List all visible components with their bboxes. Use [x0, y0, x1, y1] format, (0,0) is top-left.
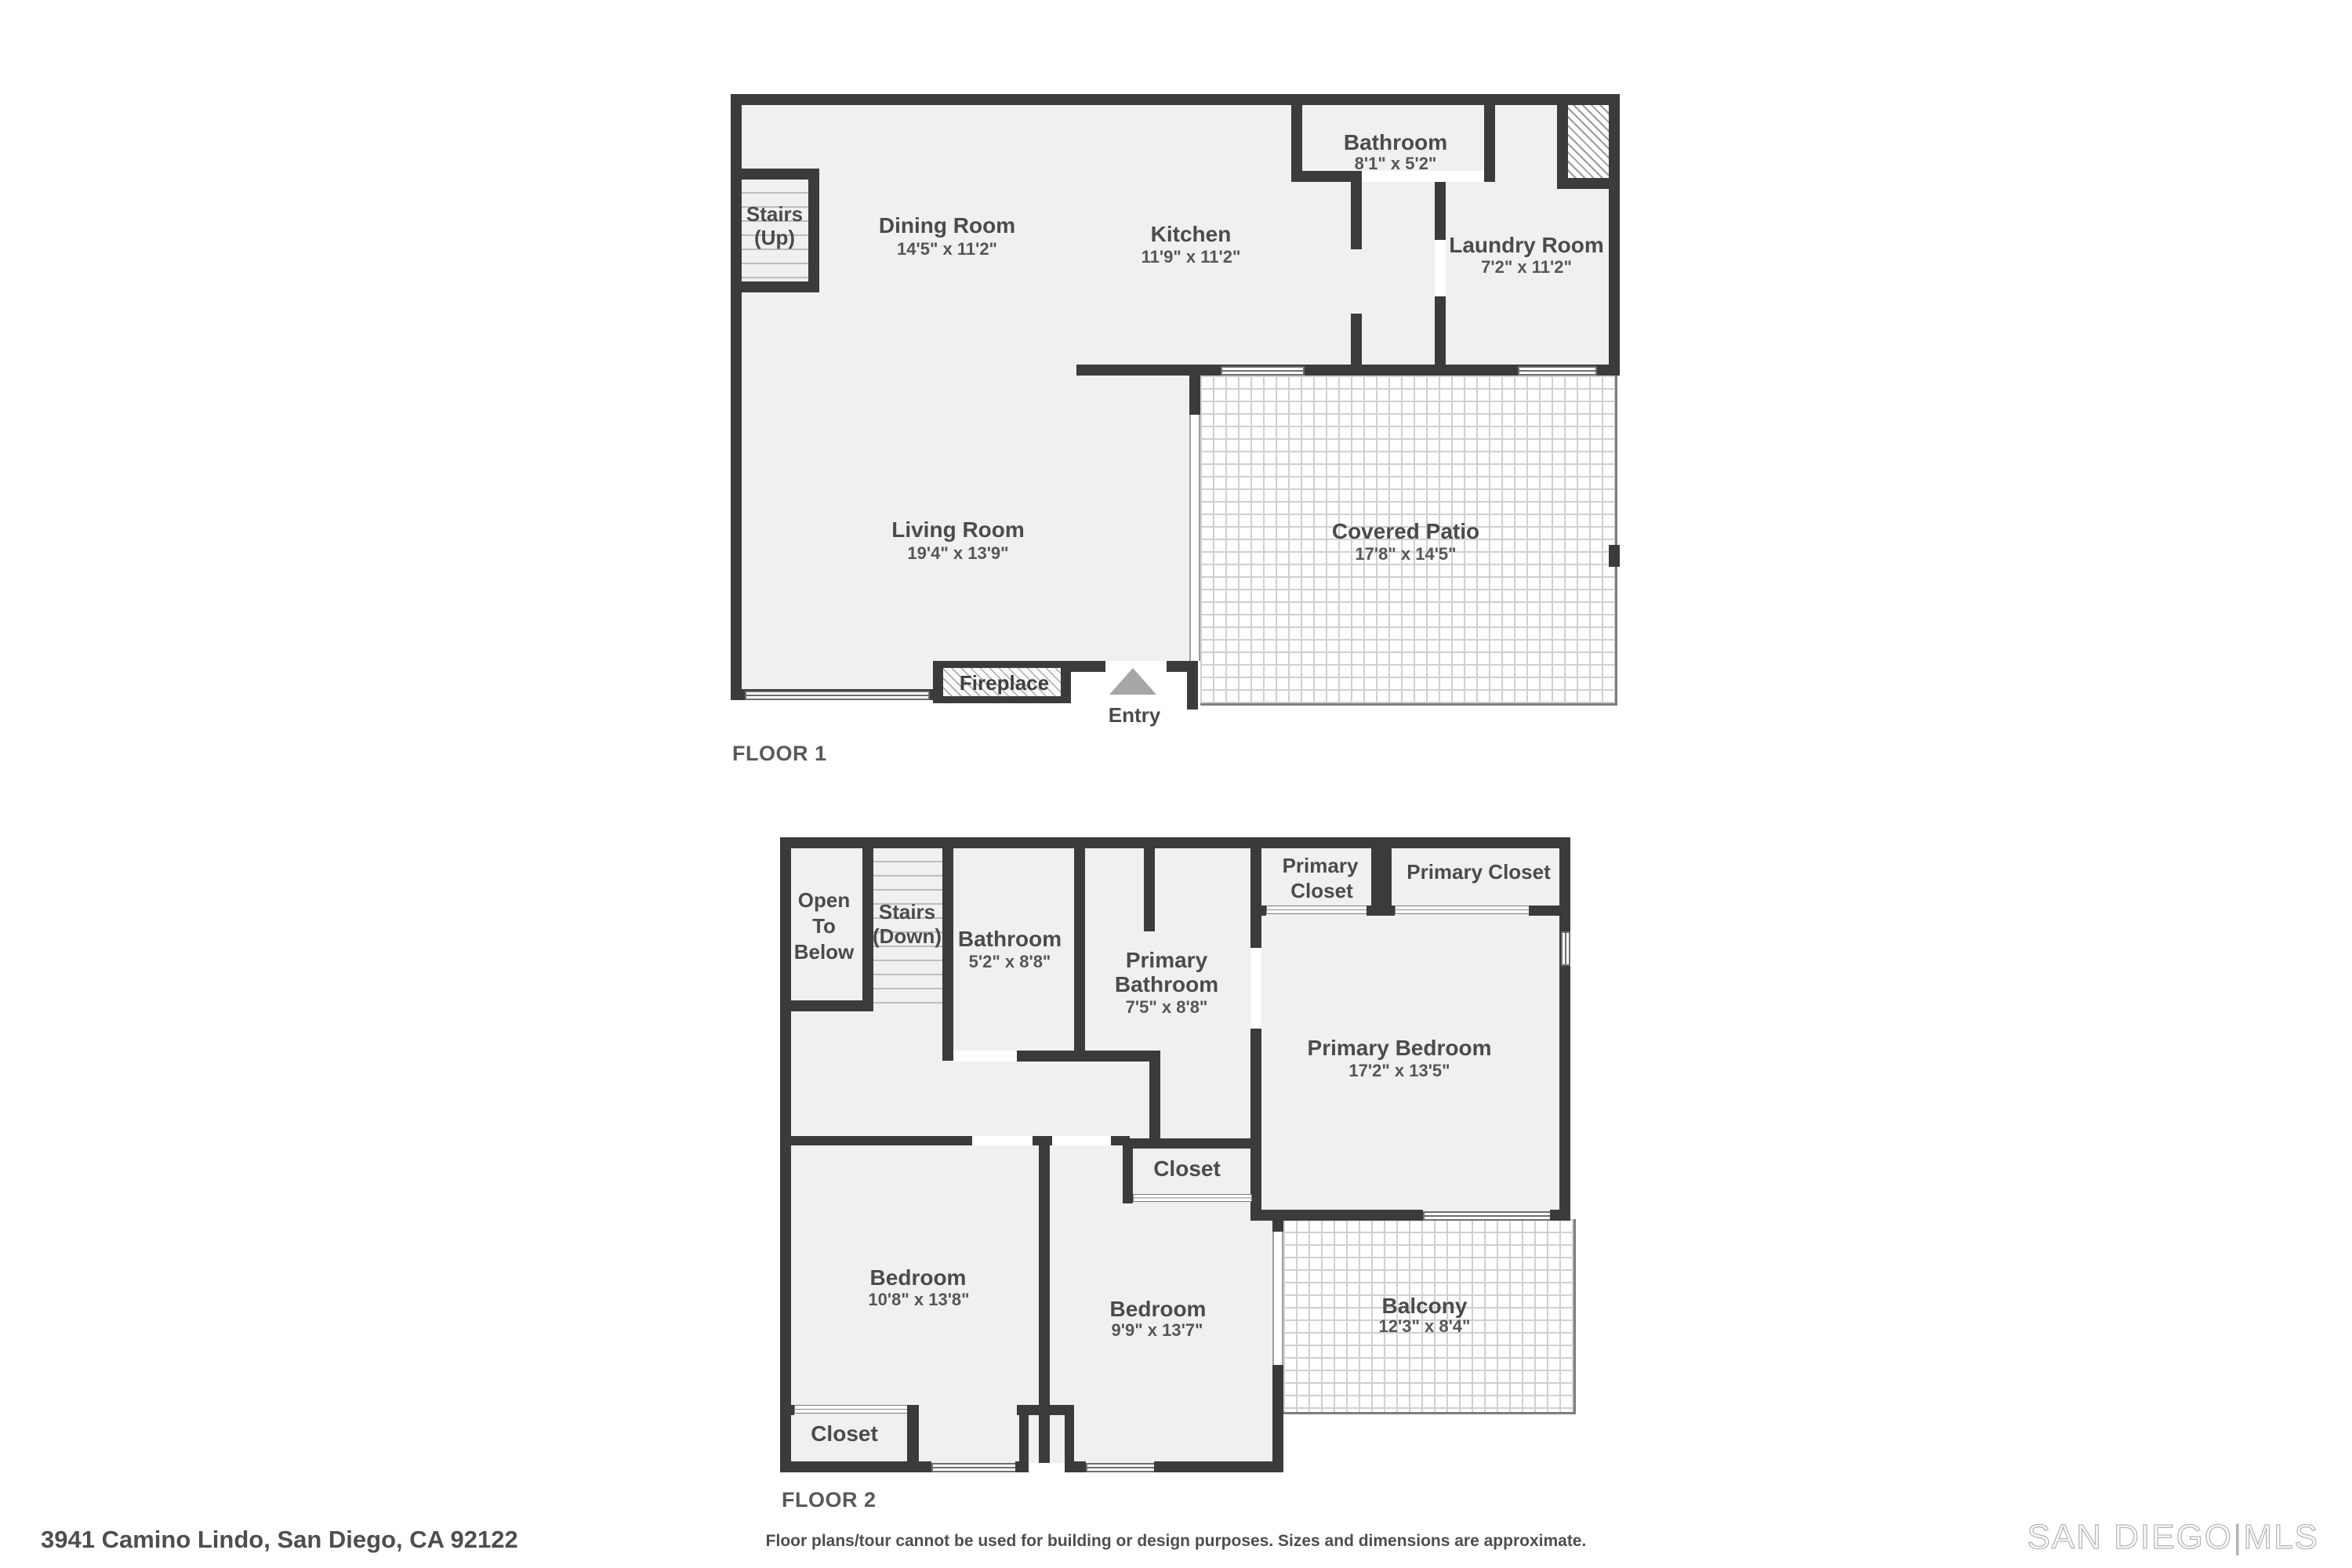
wall-segment: [1272, 1365, 1283, 1472]
property-address: 3941 Camino Lindo, San Diego, CA 92122: [41, 1526, 518, 1554]
wall-segment: [808, 180, 819, 292]
room-label-laundry: Laundry Room: [1449, 234, 1604, 256]
wall-segment: [1039, 1145, 1050, 1463]
room-label-closet-bottom: Closet: [811, 1423, 878, 1445]
wall-segment: [1435, 182, 1446, 240]
wall-segment: [907, 1405, 919, 1415]
room-label-bedroom2: Bedroom: [1110, 1298, 1207, 1320]
window: [931, 1463, 1018, 1472]
logo-part2: MLS: [2244, 1518, 2319, 1556]
window: [1086, 1463, 1157, 1472]
floor2-caption: FLOOR 2: [782, 1488, 877, 1512]
wall-segment: [780, 848, 791, 1472]
room-label-primary-closet1b: Closet: [1290, 880, 1352, 901]
door-opening: [953, 1051, 1017, 1062]
wall-segment: [1609, 105, 1620, 376]
room-dims-bathroom2: 5'2" x 8'8": [969, 953, 1051, 971]
wall-segment: [735, 169, 819, 180]
door-opening: [1435, 240, 1446, 296]
window: [1423, 1211, 1553, 1221]
wall-segment: [1187, 661, 1198, 710]
closet-door: [1133, 1194, 1252, 1202]
room-dims-living: 19'4" x 13'9": [907, 545, 1008, 562]
door-opening: [972, 1136, 1033, 1145]
logo-part1: SAN DIEGO: [2027, 1518, 2234, 1556]
entry-arrow-icon: [1109, 668, 1156, 695]
room-dims-primary-bedroom: 17'2" x 13'5": [1348, 1062, 1450, 1080]
wall-segment: [784, 1405, 794, 1415]
room-label-kitchen: Kitchen: [1151, 223, 1232, 245]
room-dims-bathroom1: 8'1" x 5'2": [1355, 155, 1437, 172]
room-dims-bedroom1: 10'8" x 13'8": [868, 1291, 969, 1308]
closet-door: [794, 1405, 909, 1414]
room-label-primary-closet2: Primary Closet: [1406, 862, 1551, 882]
floor1-caption: FLOOR 1: [732, 742, 827, 766]
hatched-area: [1568, 105, 1609, 178]
patio-door-opening: [1189, 415, 1200, 661]
open-below-label1: Open: [798, 890, 850, 910]
wall-segment: [1074, 848, 1085, 1062]
room-label-primary-closet1: Primary: [1283, 855, 1359, 876]
room-floor: [742, 661, 933, 690]
room-label-living: Living Room: [891, 519, 1025, 541]
room-label-primary-bathroom: Primary: [1126, 949, 1207, 971]
wall-segment: [1351, 182, 1362, 249]
window: [1518, 366, 1597, 376]
room-dims-patio: 17'8" x 14'5": [1355, 546, 1456, 563]
wall-segment: [1033, 1136, 1052, 1145]
logo-separator: |: [2233, 1518, 2243, 1556]
wall-segment: [1070, 661, 1105, 672]
wall-segment: [1017, 1405, 1074, 1415]
wall-segment: [1559, 848, 1570, 1219]
wall-segment: [1017, 1051, 1074, 1062]
wall-segment: [731, 105, 742, 700]
wall-segment: [1291, 171, 1362, 182]
wall-segment: [780, 1461, 931, 1472]
wall-segment: [731, 94, 1620, 105]
stairs-up-label: Stairs: [746, 204, 803, 224]
window: [745, 691, 930, 700]
wall-segment: [1550, 1210, 1570, 1221]
wall-segment: [1065, 1415, 1074, 1461]
closet-door: [1395, 906, 1530, 914]
entry-label: Entry: [1109, 705, 1160, 725]
stairs-down-label2: (Down): [873, 926, 942, 946]
wall-segment: [1154, 1461, 1283, 1472]
room-dims-kitchen: 11'9" x 11'2": [1142, 249, 1241, 266]
disclaimer-text: Floor plans/tour cannot be used for buil…: [766, 1532, 1587, 1551]
wall-segment: [1065, 1461, 1086, 1472]
wall-segment: [1189, 376, 1200, 415]
wall-segment: [1272, 1210, 1283, 1232]
fireplace-label: Fireplace: [960, 673, 1049, 693]
room-dims-laundry: 7'2" x 11'2": [1481, 259, 1572, 276]
wall-segment: [735, 281, 819, 292]
stairs-down-label: Stairs: [879, 902, 935, 922]
room-label-primary-bathroom2: Bathroom: [1115, 974, 1218, 996]
wall-segment: [1250, 906, 1266, 916]
wall-segment: [1351, 314, 1362, 365]
wall-segment: [907, 1415, 919, 1463]
wall-segment: [780, 837, 1570, 848]
wall-segment: [1144, 848, 1155, 931]
wall-segment: [862, 848, 873, 1011]
closet-door: [1266, 906, 1368, 914]
wall-segment: [1015, 1461, 1029, 1472]
wall-segment: [1484, 105, 1495, 182]
wall-segment: [1529, 906, 1559, 916]
wall-segment: [1019, 1415, 1029, 1461]
wall-segment: [1435, 296, 1446, 365]
wall-segment: [786, 1136, 972, 1145]
stairs-up-label2: (Up): [754, 227, 795, 248]
wall-segment: [1557, 178, 1620, 189]
room-label-closet-mid: Closet: [1153, 1158, 1221, 1180]
sandiego-mls-logo: SAN DIEGO|MLS: [2027, 1518, 2319, 1557]
wall-segment: [1123, 1194, 1133, 1203]
window: [1561, 931, 1570, 966]
room-dims-primary-bathroom: 7'5" x 8'8": [1126, 999, 1208, 1016]
room-label-balcony: Balcony: [1382, 1295, 1468, 1317]
wall-segment: [1557, 94, 1568, 189]
wall-segment: [1609, 545, 1620, 567]
wall-segment: [942, 848, 953, 1061]
wall-segment: [780, 1000, 873, 1011]
door-opening: [1052, 1136, 1111, 1145]
room-label-patio: Covered Patio: [1332, 521, 1479, 543]
wall-segment: [1367, 906, 1395, 916]
room-dims-dining: 14'5" x 11'2": [897, 241, 997, 258]
room-label-primary-bedroom: Primary Bedroom: [1308, 1037, 1492, 1059]
open-below-label2: To: [812, 916, 836, 936]
wall-segment: [1149, 1051, 1160, 1145]
door-opening: [1250, 948, 1261, 1029]
open-below-label3: Below: [794, 942, 855, 962]
floorplan-canvas: Stairs (Up) Dining Room 14'5" x 11'2" Ki…: [0, 0, 2352, 1568]
wall-segment: [1250, 848, 1261, 948]
room-label-bathroom1: Bathroom: [1344, 132, 1447, 154]
room-dims-bedroom2: 9'9" x 13'7": [1112, 1322, 1203, 1339]
room-label-dining: Dining Room: [879, 215, 1015, 237]
wall-segment: [1250, 1029, 1261, 1219]
room-label-bathroom2: Bathroom: [958, 928, 1062, 950]
room-label-bedroom1: Bedroom: [870, 1267, 967, 1289]
room-dims-balcony: 12'3" x 8'4": [1379, 1318, 1471, 1335]
wall-segment: [1127, 1138, 1261, 1149]
balcony-door-opening: [1272, 1232, 1283, 1365]
window: [1221, 366, 1305, 376]
